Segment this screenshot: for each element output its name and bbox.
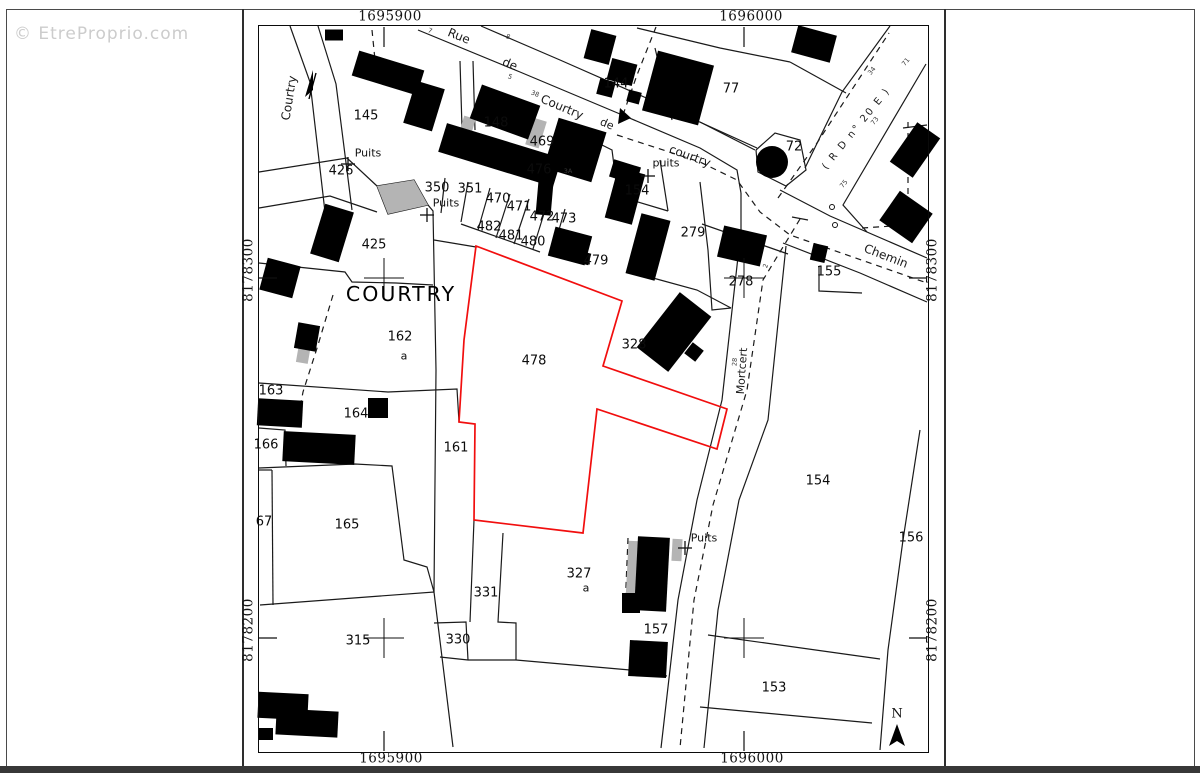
commune-name-label: COURTRY xyxy=(346,284,456,305)
parcel-number-480: 480 xyxy=(521,236,546,249)
street-name-label: Mortcert xyxy=(735,347,749,394)
parcel-number-157: 157 xyxy=(644,624,669,637)
northing-label-right-1: 8178300 xyxy=(926,238,940,302)
well-label: Puits xyxy=(691,533,718,544)
north-arrow-label: N xyxy=(891,708,902,721)
house-number-label: 28 xyxy=(731,358,738,367)
well-label: Puits xyxy=(433,198,460,209)
parcel-number-148: 148 xyxy=(484,117,509,130)
parcel-number-166: 166 xyxy=(254,439,279,452)
parcel-number-a: a xyxy=(401,351,408,362)
parcel-number-469: 469 xyxy=(530,136,555,149)
parcel-number-145: 145 xyxy=(354,110,379,123)
easting-label-bottom-1: 1695900 xyxy=(359,752,423,766)
parcel-number-471: 471 xyxy=(507,201,532,214)
parcel-number-154: 154 xyxy=(806,475,831,488)
parcel-number-163: 163 xyxy=(259,385,284,398)
parcel-number-164: 164 xyxy=(344,408,369,421)
house-number-label: 3A xyxy=(564,168,573,175)
well-label: puits xyxy=(652,158,679,169)
parcel-number-67: 67 xyxy=(256,516,273,529)
parcel-number-350: 350 xyxy=(425,182,450,195)
parcel-number-155: 155 xyxy=(817,266,842,279)
parcel-number-426: 426 xyxy=(329,165,354,178)
parcel-number-330: 330 xyxy=(446,634,471,647)
parcel-number-a: a xyxy=(583,583,590,594)
northing-label-left-2: 8178200 xyxy=(242,598,256,662)
parcel-number-479: 479 xyxy=(584,255,609,268)
cadastral-map-page: © EtreProprio.com 1695900 1696000 169590… xyxy=(0,0,1200,773)
northing-label-right-2: 8178200 xyxy=(926,598,940,662)
northing-label-left-1: 8178300 xyxy=(242,238,256,302)
parcel-number-279: 279 xyxy=(681,227,706,240)
parcel-number-144: 144 xyxy=(604,78,629,91)
parcel-number-327: 327 xyxy=(567,568,592,581)
easting-label-top-2: 1696000 xyxy=(719,10,783,24)
well-label: Puits xyxy=(355,148,382,159)
parcel-number-328: 328 xyxy=(622,339,647,352)
parcel-number-278: 278 xyxy=(729,276,754,289)
easting-label-bottom-2: 1696000 xyxy=(720,752,784,766)
parcel-number-153: 153 xyxy=(762,682,787,695)
parcel-number-476: 476 xyxy=(527,164,552,177)
parcel-number-315: 315 xyxy=(346,635,371,648)
parcel-number-351: 351 xyxy=(458,183,483,196)
parcel-number-162: 162 xyxy=(388,331,413,344)
parcel-number-478: 478 xyxy=(522,355,547,368)
parcel-number-331: 331 xyxy=(474,587,499,600)
parcel-number-161: 161 xyxy=(444,442,469,455)
parcel-number-156: 156 xyxy=(899,532,924,545)
parcel-number-154: 154 xyxy=(625,185,650,198)
parcel-number-77: 77 xyxy=(723,83,740,96)
parcel-number-425: 425 xyxy=(362,239,387,252)
parcel-number-473: 473 xyxy=(552,213,577,226)
easting-label-top-1: 1695900 xyxy=(358,10,422,24)
parcel-number-165: 165 xyxy=(335,519,360,532)
parcel-number-72: 72 xyxy=(786,141,803,154)
